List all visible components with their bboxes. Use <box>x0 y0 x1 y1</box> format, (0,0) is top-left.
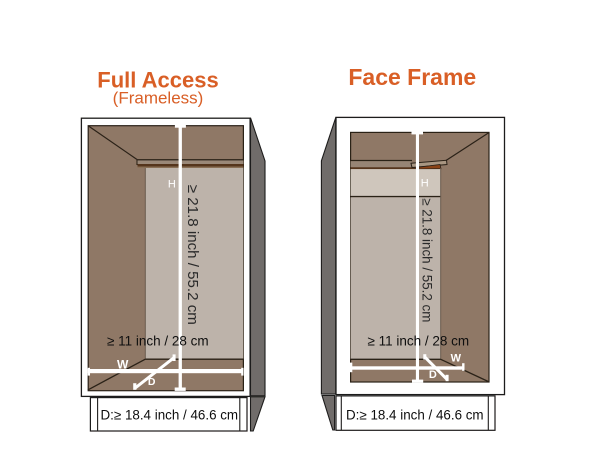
svg-text:W: W <box>451 353 462 365</box>
svg-text:D:≥ 18.4 inch / 46.6 cm: D:≥ 18.4 inch / 46.6 cm <box>346 407 484 422</box>
svg-text:≥ 11 inch / 28 cm: ≥ 11 inch / 28 cm <box>367 333 469 348</box>
svg-text:H: H <box>168 178 176 190</box>
svg-text:≥ 21.8 inch / 55.2 cm: ≥ 21.8 inch / 55.2 cm <box>184 185 201 325</box>
svg-text:D: D <box>429 369 437 381</box>
svg-text:(Frameless): (Frameless) <box>113 89 204 108</box>
svg-text:D:≥ 18.4 inch / 46.6 cm: D:≥ 18.4 inch / 46.6 cm <box>100 407 238 422</box>
svg-text:D: D <box>148 376 156 388</box>
svg-text:Face Frame: Face Frame <box>348 64 476 90</box>
svg-text:H: H <box>421 177 429 189</box>
svg-text:≥ 21.8 inch / 55.2 cm: ≥ 21.8 inch / 55.2 cm <box>420 198 435 322</box>
svg-text:W: W <box>117 358 129 372</box>
svg-text:≥ 11 inch / 28 cm: ≥ 11 inch / 28 cm <box>107 333 209 348</box>
